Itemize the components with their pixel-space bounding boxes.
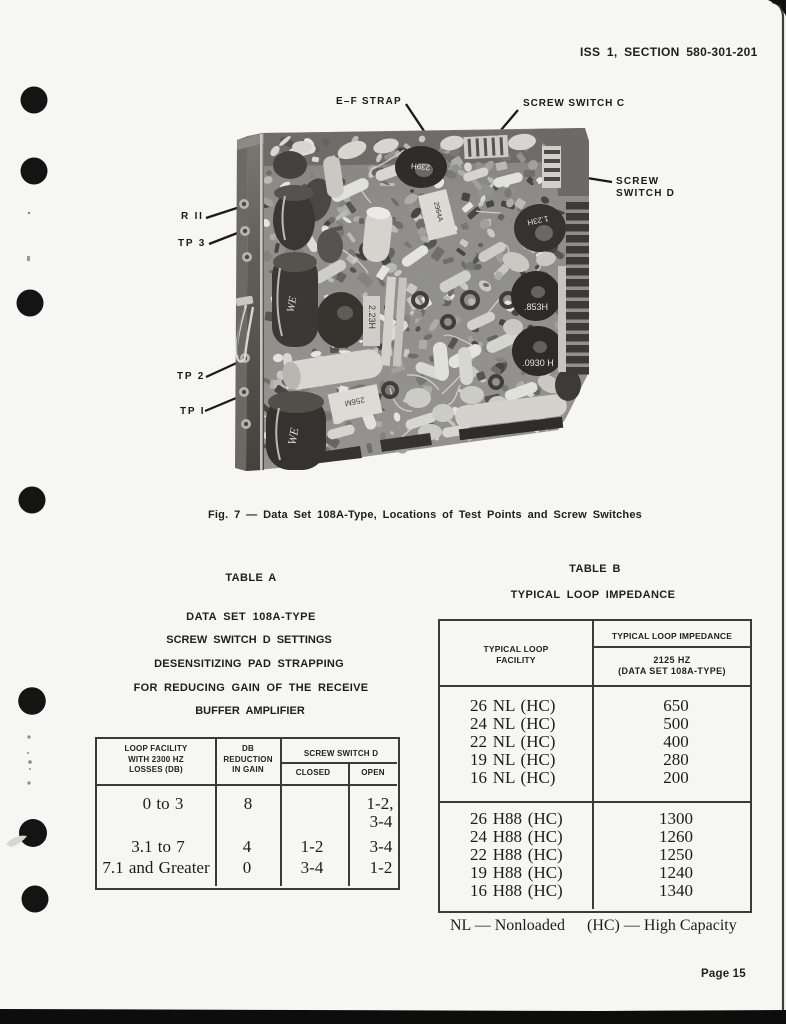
svg-text:239H: 239H [410,161,430,172]
svg-text:.0930 H: .0930 H [522,358,554,368]
svg-text:2.23H: 2.23H [367,305,377,329]
svg-text:.853H: .853H [524,302,548,312]
